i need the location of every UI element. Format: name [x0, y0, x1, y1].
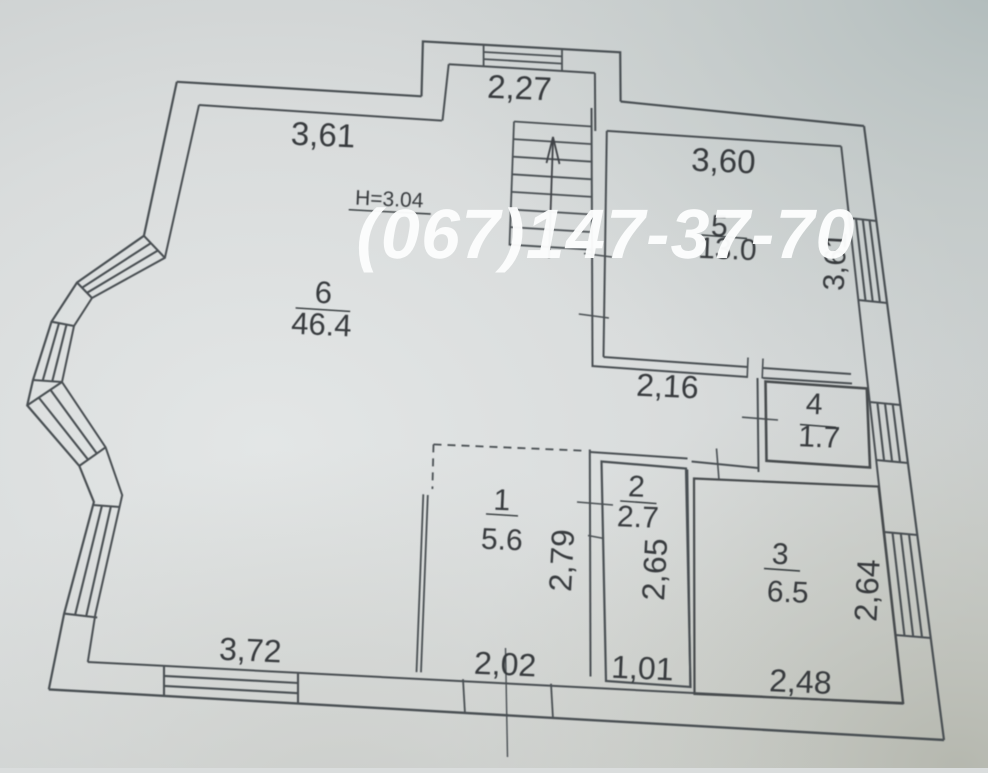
svg-text:6.5: 6.5: [766, 575, 809, 610]
svg-text:1.7: 1.7: [798, 420, 841, 455]
svg-text:1,01: 1,01: [611, 649, 675, 688]
svg-text:(067)147-37-70: (067)147-37-70: [356, 195, 855, 273]
svg-text:3: 3: [771, 538, 789, 572]
svg-text:2,27: 2,27: [487, 68, 553, 108]
svg-text:3,61: 3,61: [290, 115, 356, 155]
svg-text:5.6: 5.6: [480, 523, 523, 558]
svg-text:6: 6: [314, 275, 333, 311]
svg-text:3,72: 3,72: [218, 631, 282, 670]
svg-text:2,79: 2,79: [542, 528, 581, 592]
svg-text:2.7: 2.7: [616, 500, 659, 535]
svg-text:2: 2: [627, 470, 645, 504]
svg-text:2,64: 2,64: [847, 558, 886, 622]
svg-text:2,02: 2,02: [473, 645, 537, 684]
svg-text:1: 1: [493, 484, 511, 518]
svg-text:2,48: 2,48: [769, 662, 833, 701]
svg-text:4: 4: [805, 388, 823, 422]
svg-text:3,60: 3,60: [691, 141, 757, 181]
svg-text:46.4: 46.4: [291, 306, 353, 344]
svg-text:2,65: 2,65: [635, 537, 674, 601]
svg-text:2,16: 2,16: [636, 367, 700, 406]
